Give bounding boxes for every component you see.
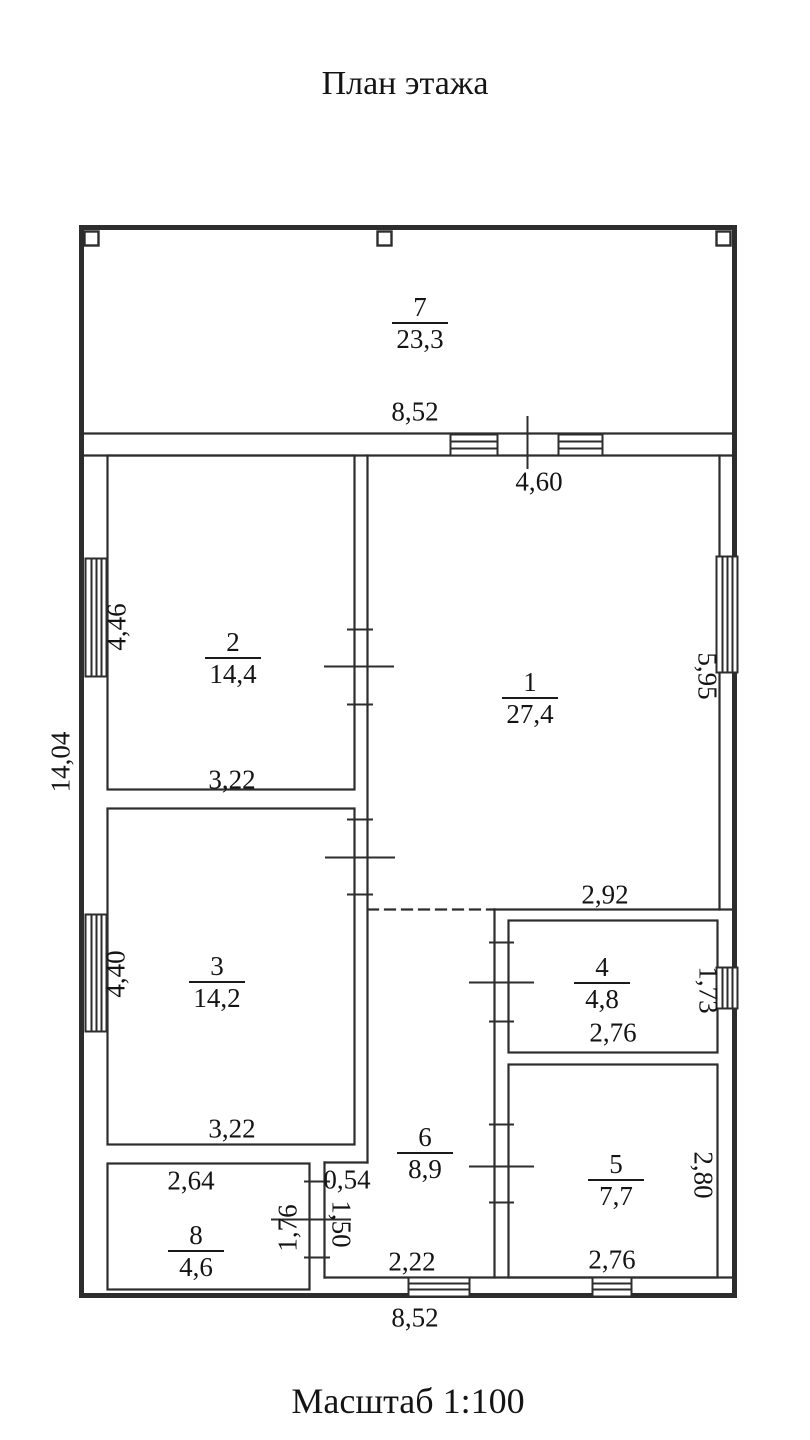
room-area: 7,7 — [588, 1182, 644, 1211]
window-hatch-bottom-room5 — [593, 1278, 632, 1297]
column-marker — [85, 232, 99, 246]
room-label-5: 5 7,7 — [588, 1150, 644, 1211]
room-number: 2 — [205, 628, 261, 659]
dim-room2-height: 4,46 — [102, 603, 133, 650]
dim-corridor-width: 2,22 — [388, 1247, 435, 1278]
dim-room2-width: 3,22 — [208, 765, 255, 796]
room-label-7: 7 23,3 — [392, 293, 448, 354]
room-number: 6 — [397, 1123, 453, 1154]
room-number: 1 — [502, 668, 558, 699]
room-area: 23,3 — [392, 325, 448, 354]
window-hatch-top-left — [451, 435, 498, 456]
column-marker — [717, 232, 731, 246]
dim-room1-top: 4,60 — [515, 467, 562, 498]
room-number: 8 — [168, 1221, 224, 1252]
room-number: 7 — [392, 293, 448, 324]
room-label-4: 4 4,8 — [574, 953, 630, 1014]
floorplan-page: План этажа 7 23,3 2 14,4 1 27,4 3 14,2 4… — [0, 0, 810, 1440]
floorplan-drawing — [0, 0, 810, 1440]
room-label-6: 6 8,9 — [397, 1123, 453, 1184]
column-marker — [378, 232, 392, 246]
room-area: 8,9 — [397, 1155, 453, 1184]
room-area: 14,4 — [205, 660, 261, 689]
room-number: 3 — [189, 952, 245, 983]
room-area: 14,2 — [189, 984, 245, 1013]
room-2-outline — [108, 456, 355, 790]
dim-total-height: 14,04 — [46, 732, 77, 793]
room-label-8: 8 4,6 — [168, 1221, 224, 1282]
page-title: План этажа — [322, 65, 489, 103]
dim-room8-height: 1,76 — [273, 1204, 304, 1251]
door-room5 — [470, 1125, 533, 1203]
dim-corridor-height: 1,50 — [326, 1200, 357, 1247]
window-hatch-top-right — [559, 435, 603, 456]
dim-room1-height: 5,95 — [692, 652, 723, 699]
dim-room3-height: 4,40 — [101, 950, 132, 997]
room-area: 4,8 — [574, 985, 630, 1014]
room-label-1: 1 27,4 — [502, 668, 558, 729]
dim-room3-width: 3,22 — [208, 1114, 255, 1145]
dim-wall-stub: 0,54 — [323, 1165, 370, 1196]
door-room4 — [470, 943, 533, 1022]
window-hatch-bottom-corridor — [409, 1278, 470, 1297]
room-number: 4 — [574, 953, 630, 984]
dim-room5-width: 2,76 — [588, 1245, 635, 1276]
dim-bottom-width: 8,52 — [391, 1303, 438, 1334]
dim-room8-width: 2,64 — [167, 1166, 214, 1197]
room-number: 5 — [588, 1150, 644, 1181]
door-room2 — [325, 630, 393, 705]
dim-room4-width: 2,76 — [589, 1018, 636, 1049]
room-area: 27,4 — [502, 700, 558, 729]
room-label-3: 3 14,2 — [189, 952, 245, 1013]
room-label-2: 2 14,4 — [205, 628, 261, 689]
dim-room5-height: 2,80 — [688, 1151, 719, 1198]
scale-label: Масштаб 1:100 — [291, 1380, 524, 1422]
dim-room4-top: 2,92 — [581, 880, 628, 911]
column-markers — [85, 232, 731, 246]
room-area: 4,6 — [168, 1253, 224, 1282]
door-room3 — [326, 820, 394, 895]
corridor-walls — [325, 456, 732, 1278]
dim-room4-height: 1,73 — [693, 966, 724, 1013]
dim-top-width: 8,52 — [391, 397, 438, 428]
